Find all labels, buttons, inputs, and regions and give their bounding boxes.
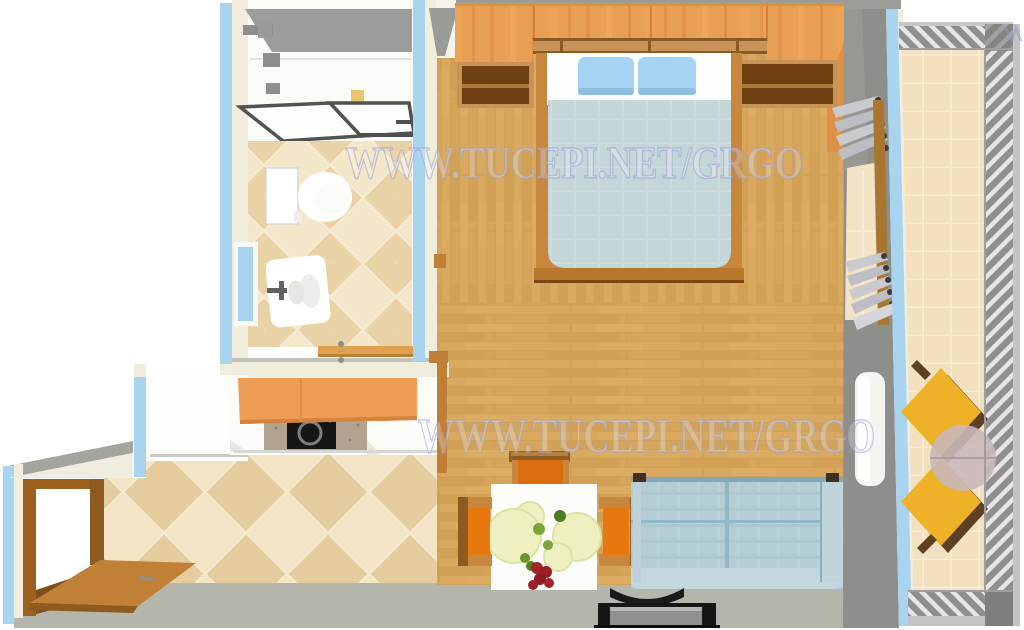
svg-text:WWW.TUCEPI.NET/GRGO: WWW.TUCEPI.NET/GRGO bbox=[345, 138, 803, 188]
svg-text:WWW.TUCEPI.NET/GRGO: WWW.TUCEPI.NET/GRGO bbox=[418, 408, 875, 463]
